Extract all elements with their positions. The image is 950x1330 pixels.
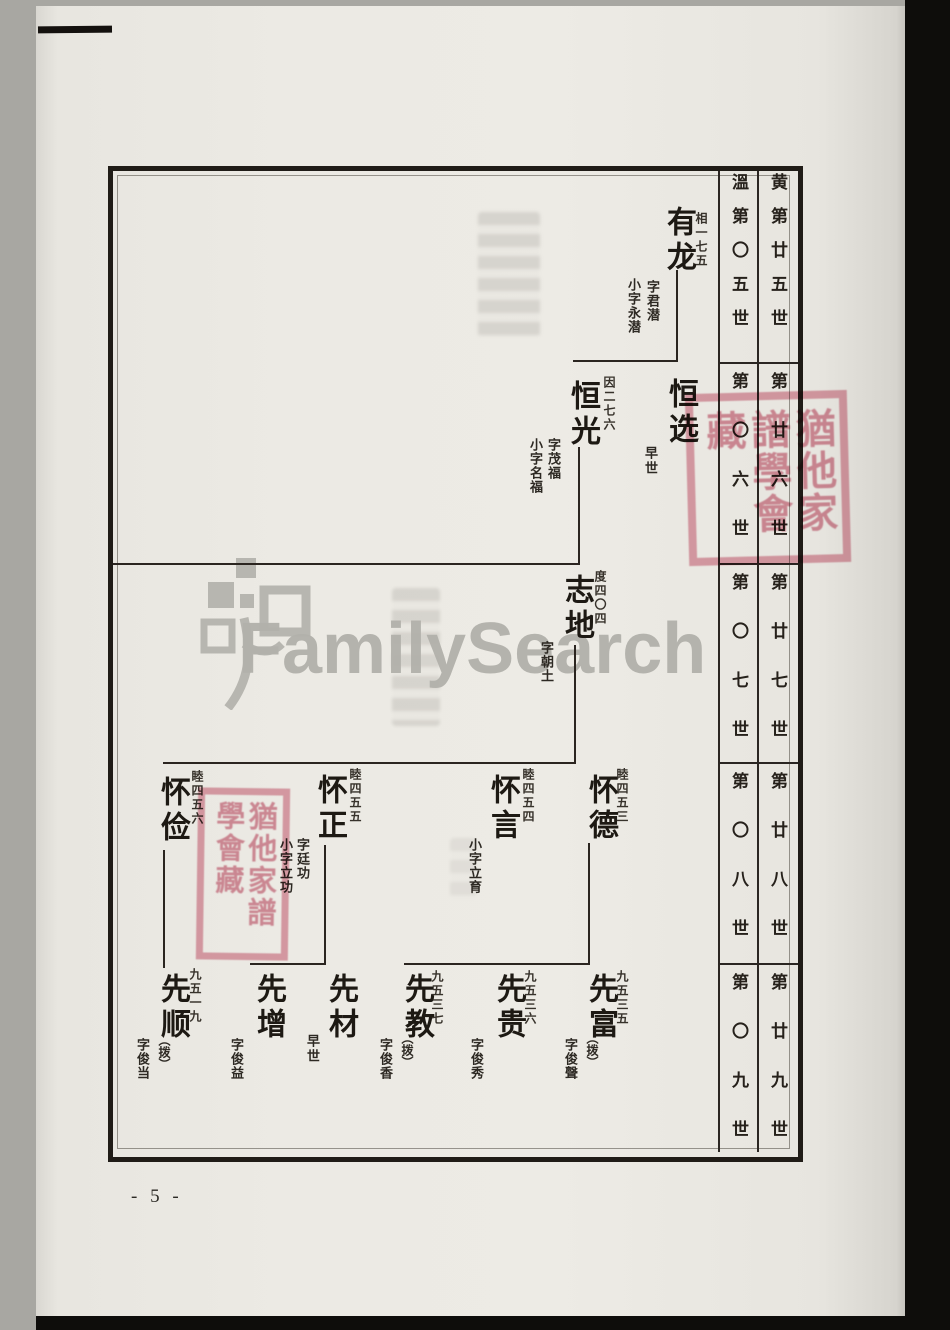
familysearch-watermark: FamilySearch	[238, 608, 706, 690]
ancestor-courtesy-name: 字君潜	[643, 280, 662, 322]
ancestor-courtesy-name: 字俊秀	[467, 1038, 486, 1080]
generation-cell-huang-28: 第廿八世	[765, 772, 790, 968]
ancestor-name: 怀言	[480, 774, 524, 844]
tree-connector-line	[676, 270, 678, 362]
ancestor-name: 先材	[318, 973, 362, 1043]
ancestor-tag: ︵拨︶	[156, 1034, 173, 1070]
ancestor-ref: 九五一九	[187, 968, 204, 1024]
page-number: - 5 -	[131, 1186, 183, 1208]
ancestor-tag: ︵拨︶	[399, 1032, 416, 1068]
tree-connector-line	[250, 963, 326, 965]
archive-seal: 猶他家譜學會藏	[685, 390, 851, 566]
ancestor-name: 怀正	[307, 774, 351, 844]
ancestor-name: 先增	[246, 973, 290, 1043]
ancestor-courtesy-name: 字俊益	[227, 1038, 246, 1080]
column-divider	[757, 171, 759, 1152]
generation-cell-wen-05: 溫第〇五世	[726, 173, 751, 343]
ancestor-name: 怀俭	[150, 776, 194, 846]
tree-connector-line	[578, 447, 580, 565]
tree-connector-line	[573, 360, 678, 362]
scanned-genealogy-page: { "page": { "number_label": "- 5 -" }, "…	[0, 0, 950, 1330]
column-divider	[718, 171, 720, 1152]
ancestor-ref: 相一七五	[693, 212, 710, 268]
ancestor-childhood-name: 小字立育	[465, 838, 484, 894]
ancestor-tag: ︵拨︶	[584, 1032, 601, 1068]
tree-connector-line	[324, 845, 326, 965]
ancestor-childhood-name: 小字永潜	[624, 278, 643, 334]
ancestor-note: 早世	[303, 1034, 322, 1064]
archive-seal-text: 猶他家譜學會藏	[210, 801, 277, 948]
ancestor-ref: 九五三六	[522, 970, 539, 1026]
generation-cell-wen-09: 第〇九世	[726, 973, 751, 1169]
ancestor-ref: 睦四五四	[520, 768, 537, 824]
scan-edge-bottom	[36, 1316, 950, 1330]
row-divider	[718, 362, 798, 364]
ancestor-courtesy-name: 字茂福	[544, 438, 563, 480]
ancestor-ref: 睦四五三	[614, 768, 631, 824]
ancestor-note: 早世	[641, 446, 660, 476]
tree-connector-line	[163, 762, 576, 764]
generation-cell-huang-27: 第廿七世	[765, 573, 790, 769]
generation-cell-huang-25: 黄第廿五世	[765, 173, 790, 343]
tree-connector-line	[588, 843, 590, 965]
ancestor-courtesy-name: 字俊当	[133, 1038, 152, 1080]
ancestor-ref: 度四〇四	[592, 570, 609, 626]
archive-seal: 猶他家譜學會藏	[196, 787, 290, 960]
tree-connector-line	[113, 563, 580, 565]
ancestor-ref: 九五三七	[429, 970, 446, 1026]
archive-seal-text: 猶他家譜學會藏	[699, 407, 837, 548]
scan-artifact-dash	[38, 26, 112, 34]
ancestor-courtesy-name: 字俊香	[376, 1038, 395, 1080]
ancestor-name: 恒光	[560, 380, 604, 450]
ancestor-childhood-name: 小字名福	[526, 438, 545, 494]
ancestor-courtesy-name: 字朝土	[537, 641, 556, 683]
generation-cell-wen-07: 第〇七世	[726, 573, 751, 769]
tree-connector-line	[404, 963, 590, 965]
ancestor-courtesy-name: 字俊聲	[561, 1038, 580, 1080]
ancestor-ref: 九五三五	[614, 970, 631, 1026]
ancestor-ref: 睦四五五	[347, 768, 364, 824]
ancestor-courtesy-name: 字廷功	[293, 838, 312, 880]
generation-cell-wen-08: 第〇八世	[726, 772, 751, 968]
ancestor-ref: 因二七六	[601, 376, 618, 432]
tree-connector-line	[163, 850, 165, 968]
scan-edge-right	[905, 0, 950, 1330]
tree-connector-line	[574, 645, 576, 764]
generation-cell-huang-29: 第廿九世	[765, 973, 790, 1169]
